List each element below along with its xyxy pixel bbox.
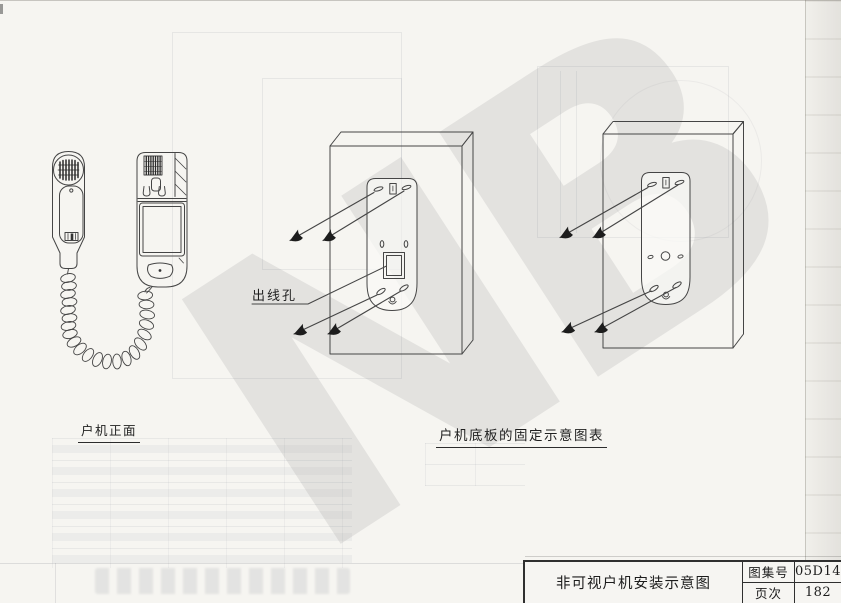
- drawing-title: 非可视户机安装示意图: [525, 562, 742, 603]
- cradle-hook: [143, 187, 150, 197]
- handset-figure: [53, 152, 85, 269]
- technical-drawing: [0, 0, 841, 603]
- atlas-no-value: 05D14: [795, 562, 841, 582]
- caption-handset-front: 户机正面: [78, 420, 140, 443]
- coil-cord: [60, 269, 155, 370]
- title-block-grid: 图集号 05D14 页次 182: [742, 562, 841, 603]
- mounting-plate-right: [603, 122, 744, 349]
- atlas-no-label: 图集号: [743, 562, 795, 582]
- cradle-hook: [159, 187, 166, 197]
- page-no-label: 页次: [743, 583, 795, 603]
- base-unit-figure: [137, 153, 187, 294]
- caption-baseplate-fixing: 户机底板的固定示意图表: [436, 424, 607, 448]
- label-wire-outlet: 出线孔: [252, 285, 297, 304]
- title-block-outer-line: [525, 556, 841, 557]
- title-block: 非可视户机安装示意图 图集号 05D14 页次 182: [523, 560, 841, 603]
- page-no-value: 182: [795, 583, 841, 603]
- scanned-atlas-page: NB: [0, 0, 841, 603]
